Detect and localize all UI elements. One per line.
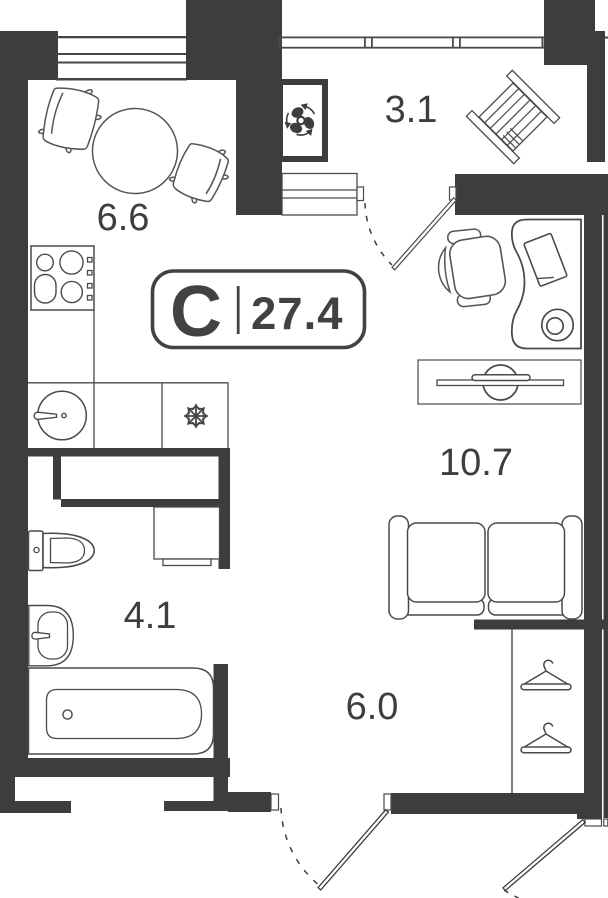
svg-text:27.4: 27.4 [251,288,344,339]
svg-text:6.6: 6.6 [97,197,150,239]
svg-text:4.1: 4.1 [124,595,177,637]
svg-text:10.7: 10.7 [439,442,513,484]
svg-text:С: С [170,272,222,352]
svg-text:3.1: 3.1 [385,89,438,131]
svg-text:6.0: 6.0 [346,686,399,728]
